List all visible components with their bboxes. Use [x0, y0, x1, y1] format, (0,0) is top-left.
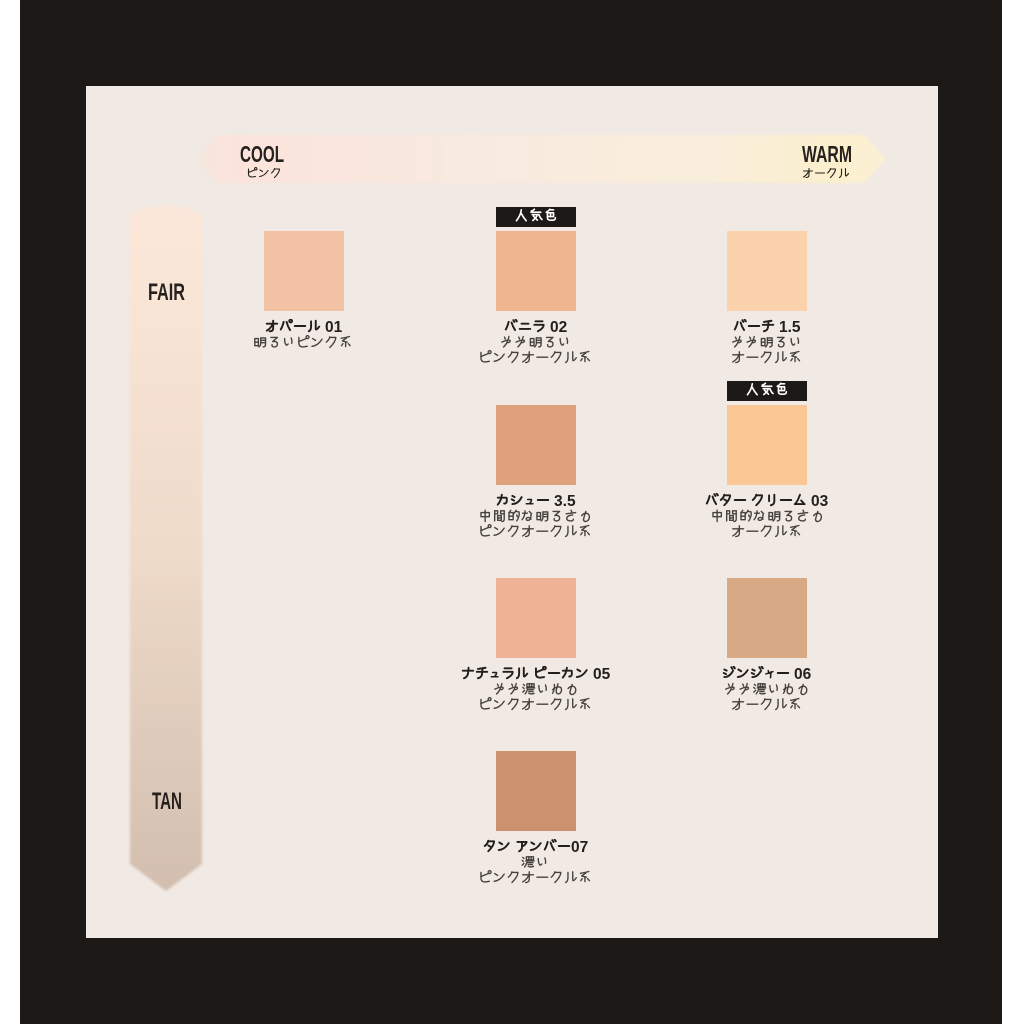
svg-text:02: 02 [550, 319, 567, 336]
svg-text:WARM: WARM [802, 141, 852, 167]
svg-text:01: 01 [325, 319, 343, 336]
svg-text:03: 03 [811, 493, 829, 510]
svg-text:0: 0 [571, 839, 580, 856]
svg-text:COOL: COOL [240, 141, 284, 167]
svg-text:FAIR: FAIR [148, 279, 185, 305]
svg-text:05: 05 [593, 666, 611, 683]
svg-text:06: 06 [794, 666, 812, 683]
svg-text:TAN: TAN [152, 788, 182, 814]
svg-text:7: 7 [579, 839, 588, 856]
svg-text:3.5: 3.5 [554, 493, 576, 510]
svg-text:1.5: 1.5 [779, 319, 801, 336]
